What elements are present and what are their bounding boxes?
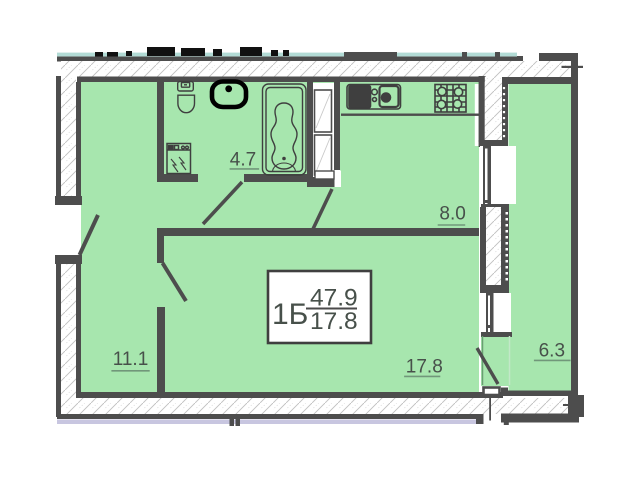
svg-text:1Б: 1Б (272, 298, 308, 331)
svg-text:6.3: 6.3 (539, 341, 565, 362)
svg-text:11.1: 11.1 (113, 349, 149, 370)
svg-text:17.8: 17.8 (406, 357, 443, 378)
svg-text:4.7: 4.7 (230, 150, 256, 171)
svg-text:17.8: 17.8 (310, 308, 358, 335)
svg-text:8.0: 8.0 (439, 203, 465, 224)
